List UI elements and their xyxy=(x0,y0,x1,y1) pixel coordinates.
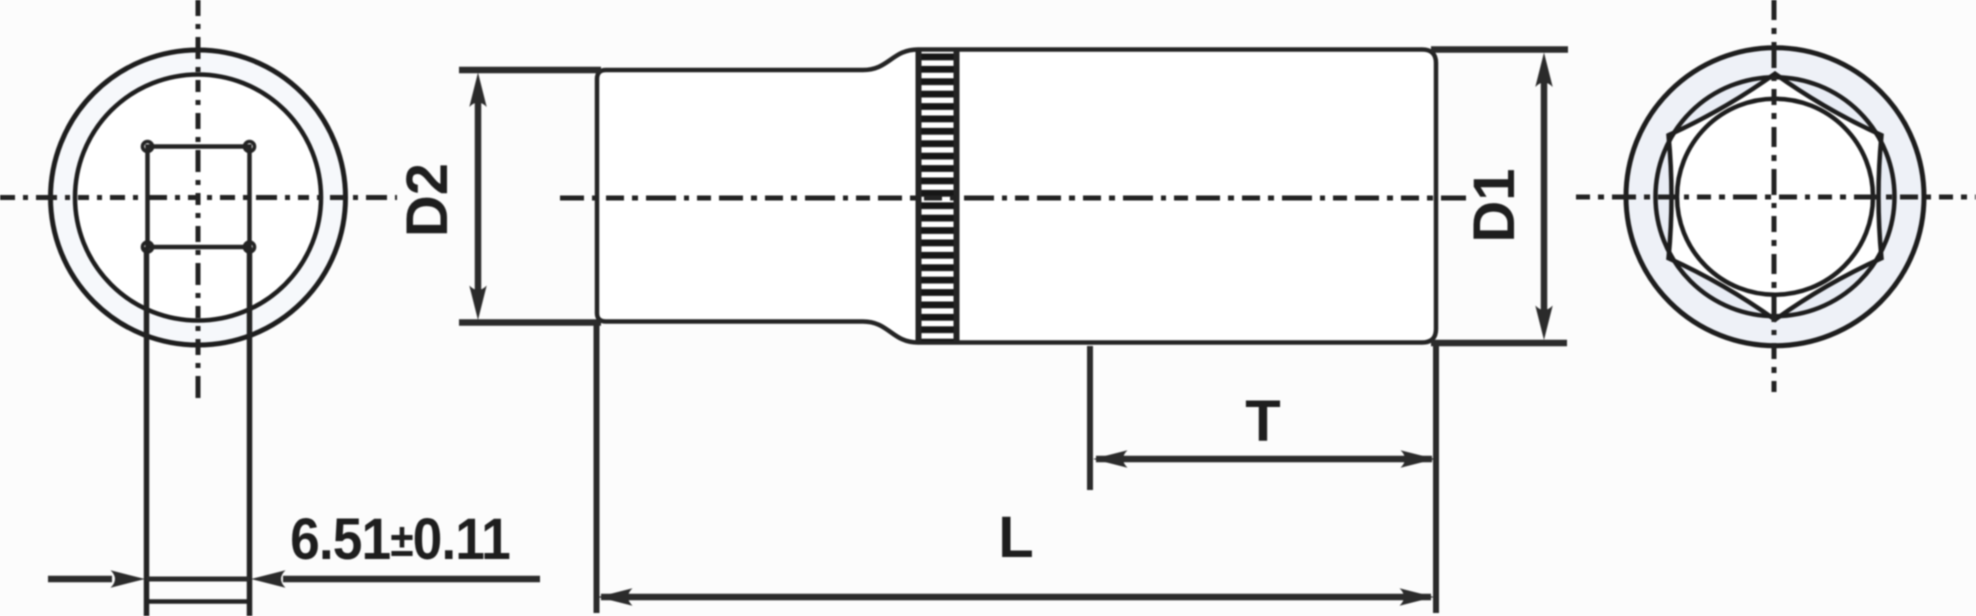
svg-text:6.51±0.11: 6.51±0.11 xyxy=(290,507,510,572)
svg-text:T: T xyxy=(1245,389,1280,454)
svg-text:D1: D1 xyxy=(1462,168,1527,242)
svg-text:L: L xyxy=(998,505,1033,570)
svg-text:D2: D2 xyxy=(395,163,460,237)
